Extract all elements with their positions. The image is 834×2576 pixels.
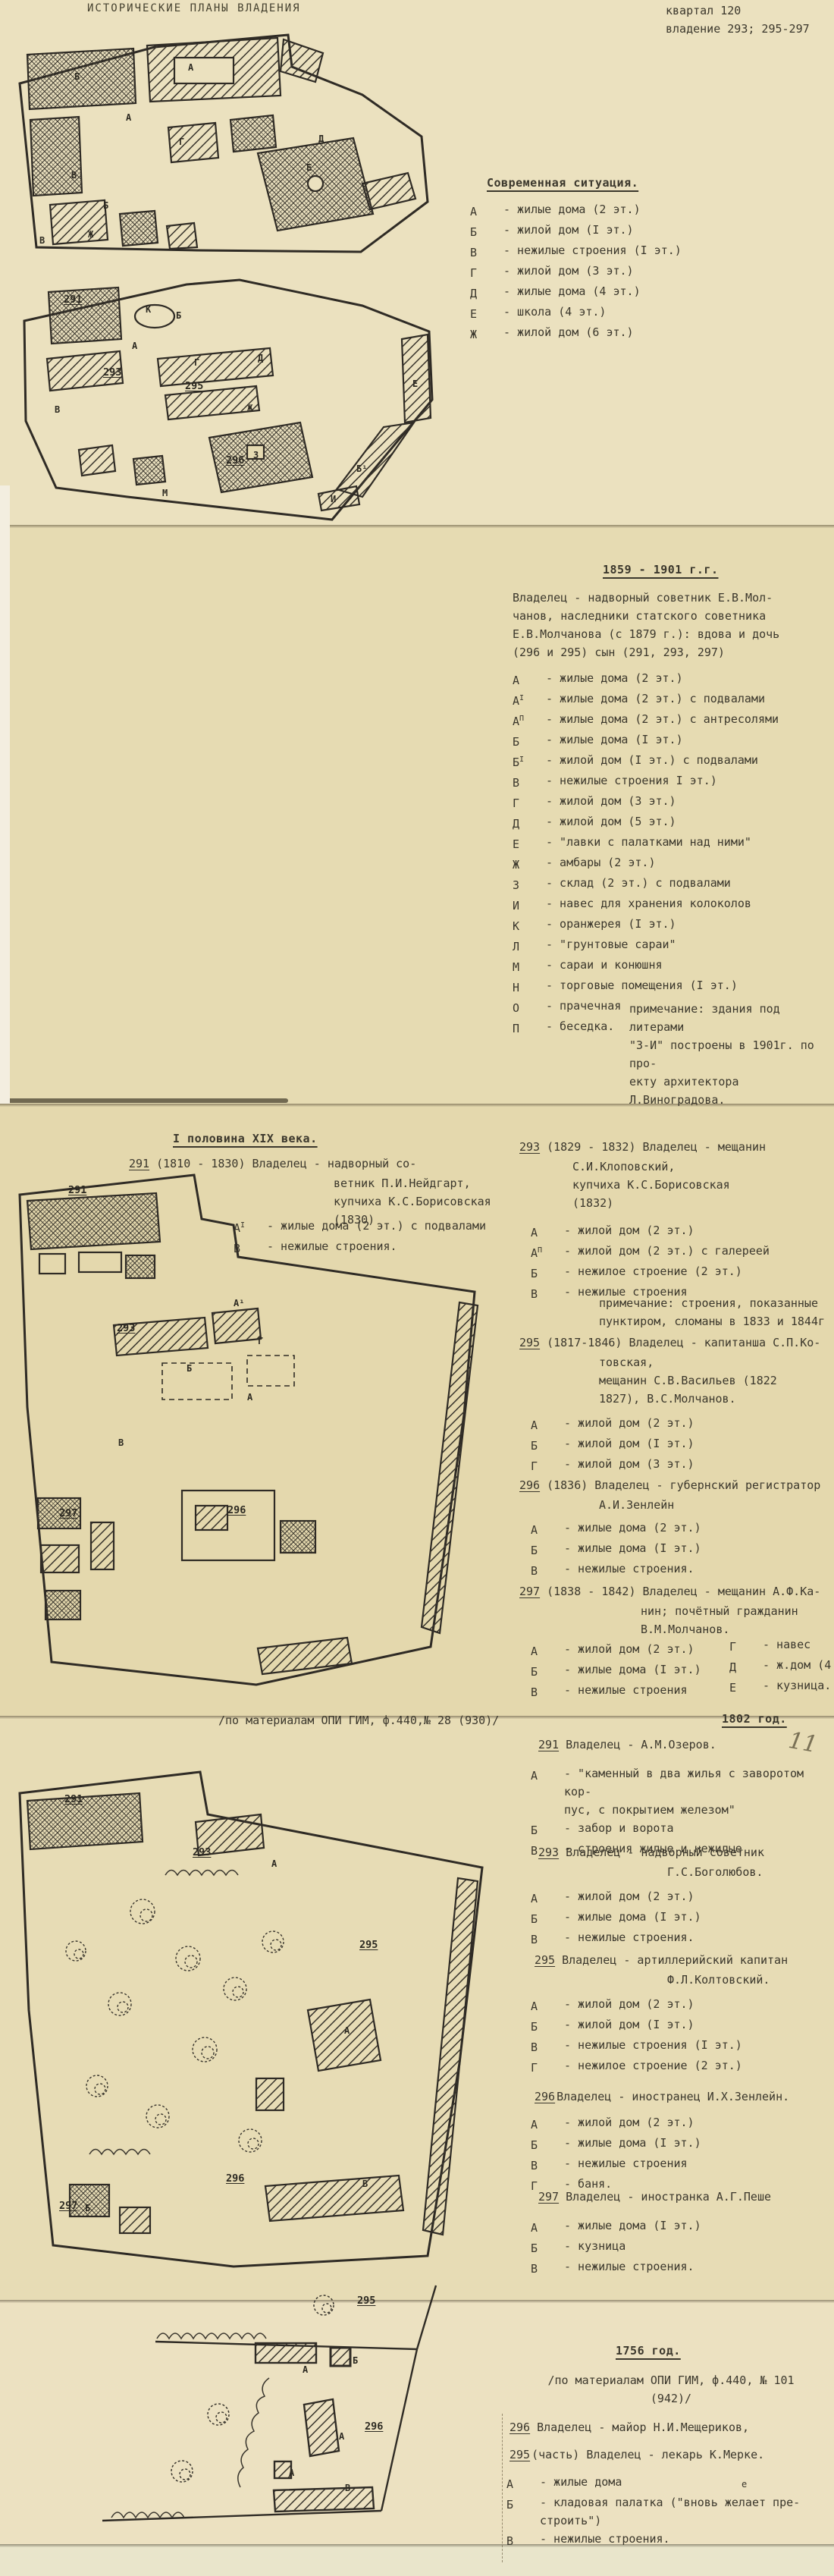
legend-text: - кладовая палатка ("вновь желает пре- с…: [540, 2493, 800, 2530]
legend-row: Д - жилой дом (5 эт.): [513, 812, 831, 833]
map-label: 291: [64, 1793, 83, 1805]
legend-row: Л - "грунтовые сараи": [513, 935, 831, 956]
legend-text: - нежилые строения: [564, 1681, 688, 1699]
section-heading-xix: I половина XIX века.: [173, 1132, 318, 1145]
owner-text: Владелец - губернский регистратор: [594, 1478, 820, 1492]
handwritten-page-number: 11: [786, 1727, 820, 1758]
plan-xix-labels: 291293296297А¹БАГВ: [6, 1164, 499, 1703]
map-label: 296: [226, 454, 244, 467]
ownership-number: 296: [509, 2420, 530, 2434]
legend-text: - жилые дома (I эт.): [564, 1660, 701, 1679]
plan-1756: 295296АБААВ: [42, 2279, 444, 2549]
entry-1802-297-items: А - жилые дома (I эт.) Б - кузница В - н…: [531, 2216, 819, 2278]
map-label: А: [126, 112, 131, 123]
legend-key: М: [513, 956, 546, 976]
legend-text: - жилой дом (3 эт.): [503, 262, 634, 280]
legend-key: БI: [513, 751, 546, 771]
entry-297-head: 297(1838 - 1842)Владелец - мещанин А.Ф.К…: [519, 1582, 820, 1601]
legend-key: А: [531, 1414, 564, 1434]
legend-text: - жилые дома (2 эт.): [564, 1519, 701, 1537]
legend-text: - жилые дома (2 эт.) с антресолями: [546, 710, 779, 728]
legend-text: - жилой дом (I эт.): [503, 221, 634, 239]
legend-row: Б - жилой дом (I эт.): [531, 1434, 819, 1455]
owner-text: (часть) Владелец - лекарь К.Мерке.: [531, 2448, 764, 2461]
legend-text: - нежилое строение (2 эт.): [564, 2056, 742, 2075]
legend-row: К - оранжерея (I эт.): [513, 915, 831, 935]
legend-text: - школа (4 эт.): [503, 303, 606, 321]
legend-row: Б - кладовая палатка ("вновь желает пре-…: [506, 2493, 825, 2530]
legend-key: А: [470, 200, 503, 221]
legend-key: П: [513, 1017, 546, 1038]
owner-text: Владелец - иностранец И.Х.Зенлейн.: [557, 2090, 789, 2103]
legend-key: АП: [531, 1242, 564, 1262]
legend-text: - нежилые строения (I эт.): [564, 2036, 742, 2054]
plan-xix: 291293296297А¹БАГВ: [6, 1164, 499, 1703]
legend-key: К: [513, 915, 546, 935]
entry-296-head: 296(1836)Владелец - губернский регистрат…: [519, 1476, 820, 1494]
map-label: 297: [59, 1507, 77, 1519]
legend-key: Г: [470, 262, 503, 282]
legend-key: А: [531, 1640, 564, 1660]
legend-key: А: [531, 1519, 564, 1539]
plan-modern: БААГДЕВБЖВ: [6, 23, 442, 259]
legend-row: Г - навес: [729, 1635, 834, 1656]
legend-text: - жилые дома (2 эт.): [546, 669, 683, 687]
ownership-number: 295: [519, 1336, 540, 1349]
ownership-number: 295: [509, 2448, 530, 2461]
entry-1802-296-head: 296Владелец - иностранец И.Х.Зенлейн.: [535, 2088, 789, 2106]
legend-row: Б - жилые дома (I эт.): [531, 2134, 819, 2154]
legend-row: В - нежилые строения: [531, 1681, 720, 1701]
legend-row: Ж - жилой дом (6 эт.): [470, 323, 819, 344]
ownership-number: 296: [535, 2090, 555, 2103]
legend-text: - жилые дома (I эт.): [546, 730, 683, 749]
legend-text: - жилой дом (2 эт.): [564, 1414, 694, 1432]
legend-key: А: [531, 2216, 564, 2237]
map-label: Б: [74, 71, 80, 82]
photo-edge-smudge: [0, 1098, 288, 1103]
legend-text: - жилой дом (2 эт.): [564, 1221, 694, 1239]
legend-key: А: [531, 2113, 564, 2134]
entry-1756-296: 296Владелец - майор Н.И.Мещериков,: [509, 2418, 749, 2436]
entry-years: (1817-1846): [547, 1336, 622, 1349]
map-label: 291: [64, 294, 82, 306]
legend-key: В: [531, 2036, 564, 2056]
entry-296-items: А - жилые дома (2 эт.) Б - жилые дома (I…: [531, 1519, 819, 1580]
legend-key: А: [513, 669, 546, 690]
legend-text: - нежилые строения.: [540, 2530, 670, 2548]
legend-key: В: [470, 241, 503, 262]
legend-row: А - жилые дома: [506, 2473, 825, 2493]
map-label: В: [39, 235, 45, 246]
legend-text: - жилой дом (6 эт.): [503, 323, 634, 341]
legend-row: Д - жилые дома (4 эт.): [470, 282, 819, 303]
legend-row: А - жилой дом (2 эт.): [531, 1414, 819, 1434]
owner-text: Владелец - артиллерийский капитан: [562, 1953, 788, 1967]
map-label: Б: [187, 1363, 192, 1374]
legend-row: А - жилые дома (2 эт.): [513, 669, 831, 690]
legend-row: В - нежилые строения (I эт.): [470, 241, 819, 262]
ownership-number: 293: [538, 1846, 559, 1859]
owner-text: Владелец - мещанин А.Ф.Ка-: [643, 1585, 821, 1598]
entry-years: (1829 - 1832): [547, 1140, 635, 1154]
section-heading-1756: 1756 год.: [616, 2344, 681, 2358]
legend-text: - жилые дома (2 эт.) с подвалами: [546, 690, 765, 708]
legend-key: АП: [513, 710, 546, 730]
legend-row: В - нежилые строения (I эт.): [531, 2036, 819, 2056]
legend-text: - жилой дом (3 эт.): [546, 792, 676, 810]
map-label: 296: [365, 2420, 383, 2433]
legend-key: Г: [531, 1455, 564, 1475]
map-label: 296: [226, 2172, 244, 2185]
legend-key: Б: [531, 1262, 564, 1283]
legend-key: Б: [531, 2237, 564, 2257]
legend-text: - жилой дом (2 эт.): [564, 2113, 694, 2131]
legend-row: АП - жилые дома (2 эт.) с антресолями: [513, 710, 831, 730]
legend-row: А - жилой дом (2 эт.): [531, 1221, 819, 1242]
legend-text: - нежилые строения.: [564, 1560, 694, 1578]
legend-row: Е - кузница.: [729, 1676, 834, 1697]
entry-297-owner-rest: нин; почётный гражданин В.М.Молчанов.: [641, 1602, 834, 1638]
legend-key: В: [531, 1681, 564, 1701]
legend-row: А - жилые дома (I эт.): [531, 2216, 819, 2237]
owner-text: Владелец - А.М.Озеров.: [566, 1738, 716, 1751]
plan-1859: 291293295296КБАВГДЕЖЗИБ¹М: [6, 269, 446, 531]
map-label: 296: [227, 1504, 246, 1516]
map-label: В: [118, 1437, 124, 1448]
legend-text: - жилой дом (I эт.) с подвалами: [546, 751, 758, 769]
legend-text: - жилой дом (2 эт.): [564, 1995, 694, 2013]
legend-text: - жилой дом (2 эт.) с галереей: [564, 1242, 770, 1260]
legend-text: - нежилые строения.: [564, 1928, 694, 1946]
legend-row: И - навес для хранения колоколов: [513, 894, 831, 915]
legend-text: - жилые дома (4 эт.): [503, 282, 641, 300]
legend-text: - склад (2 эт.) с подвалами: [546, 874, 731, 892]
legend-row: А - жилые дома (2 эт.): [470, 200, 819, 221]
legend-key: Б: [531, 2134, 564, 2154]
map-label: В: [362, 2179, 368, 2189]
entry-1802-293-items: А - жилой дом (2 эт.) Б - жилые дома (I …: [531, 1887, 819, 1949]
legend-key: Б: [531, 1434, 564, 1455]
entry-1802-296-items: А - жилой дом (2 эт.) Б - жилые дома (I …: [531, 2113, 819, 2195]
map-label: 295: [359, 1939, 378, 1951]
entry-297-items-left: А - жилой дом (2 эт.) Б - жилые дома (I …: [531, 1640, 720, 1701]
legend-text: - нежилые строения: [564, 2154, 688, 2172]
legend-text: - жилой дом (3 эт.): [564, 1455, 694, 1473]
legend-key: В: [531, 1560, 564, 1580]
entry-1802-291-head: 291Владелец - А.М.Озеров.: [538, 1736, 716, 1754]
ownership-number: 295: [535, 1953, 555, 1967]
legend-key: Б: [506, 2493, 540, 2514]
map-label: Г: [179, 137, 184, 147]
note-293: примечание: строения, показанные пунктир…: [599, 1294, 834, 1330]
legend-key: Л: [513, 935, 546, 956]
legend-text: - нежилые строения I эт.): [546, 771, 717, 790]
legend-text: - жилые дома (I эт.): [564, 1539, 701, 1557]
legend-text: - жилые дома (2 эт.): [503, 200, 641, 218]
map-label: А: [271, 1858, 277, 1869]
section-heading-1859: 1859 - 1901 г.г.: [603, 563, 719, 576]
legend-row: Б - забор и ворота: [531, 1819, 834, 1839]
legend-text: - сараи и конюшня: [546, 956, 663, 974]
map-label: 293: [117, 1322, 135, 1334]
map-label: Ж: [88, 229, 93, 240]
legend-row: А - жилой дом (2 эт.): [531, 1995, 819, 2015]
legend-text: - амбары (2 эт.): [546, 853, 656, 872]
ref-kvartal: квартал 120: [666, 2, 741, 20]
entry-1802-295-items: А - жилой дом (2 эт.) Б - жилой дом (I э…: [531, 1995, 819, 2077]
legend-row: АП - жилой дом (2 эт.) с галереей: [531, 1242, 819, 1262]
legend-text: - жилой дом (2 эт.): [564, 1640, 694, 1658]
entry-1756-items: А - жилые дома Б - кладовая палатка ("вн…: [506, 2473, 825, 2550]
ownership-number: 291: [538, 1738, 559, 1751]
legend-row: А - жилой дом (2 эт.): [531, 2113, 819, 2134]
map-label: Б: [103, 200, 108, 211]
entry-1802-293-head: 293Владелец - надворный советник: [538, 1843, 764, 1861]
entry-293-owner-rest: С.И.Клоповский, купчиха К.С.Борисовская …: [572, 1158, 777, 1212]
legend-row: Б - жилой дом (I эт.): [531, 2015, 819, 2036]
legend-key: А: [531, 1221, 564, 1242]
legend-key: Г: [531, 2056, 564, 2077]
map-label: А: [188, 62, 193, 73]
map-label: Г: [194, 357, 199, 368]
map-label: Б¹: [356, 463, 367, 474]
entry-295-items: А - жилой дом (2 эт.) Б - жилой дом (I э…: [531, 1414, 819, 1475]
map-label: 293: [193, 1846, 211, 1858]
legend-text: - жилые дома: [540, 2473, 622, 2491]
entry-years: (1838 - 1842): [547, 1585, 635, 1598]
legend-modern: А - жилые дома (2 эт.) Б - жилой дом (I …: [470, 200, 819, 344]
map-label: Ж: [247, 403, 252, 413]
legend-row: Б - жилые дома (I эт.): [531, 1660, 720, 1681]
legend-text: - жилой дом (2 эт.): [564, 1887, 694, 1905]
legend-key: АI: [513, 690, 546, 710]
owner-1859: Владелец - надворный советник Е.В.Мол- ч…: [513, 589, 823, 661]
map-label: А: [303, 2364, 308, 2375]
legend-text: - кузница.: [763, 1676, 831, 1695]
legend-key: Е: [729, 1676, 763, 1697]
legend-key: Н: [513, 976, 546, 997]
legend-row: Б - жилые дома (I эт.): [531, 1539, 819, 1560]
entry-1802-297-head: 297Владелец - иностранка А.Г.Пеше: [538, 2188, 771, 2206]
legend-row: З - склад (2 эт.) с подвалами: [513, 874, 831, 894]
legend-text: - навес: [763, 1635, 810, 1654]
legend-row: А - жилые дома (2 эт.): [531, 1519, 819, 1539]
legend-row: А - "каменный в два жилья с заворотом ко…: [531, 1764, 834, 1819]
legend-row: В - нежилые строения.: [531, 1928, 819, 1949]
ref-vladenie: владение 293; 295-297: [666, 20, 810, 38]
legend-text: - оранжерея (I эт.): [546, 915, 676, 933]
legend-key: Б: [531, 1539, 564, 1560]
legend-text: - навес для хранения колоколов: [546, 894, 751, 913]
legend-text: - "лавки с палатками над ними": [546, 833, 751, 851]
legend-key: В: [506, 2530, 540, 2550]
owner-text: Владелец - надворный советник: [566, 1846, 764, 1859]
note-1859: примечание: здания под литерами "З-И" по…: [629, 1000, 834, 1109]
entry-years: (1836): [547, 1478, 588, 1492]
legend-row: В - нежилые строения I эт.): [513, 771, 831, 792]
legend-key: В: [531, 2154, 564, 2175]
map-label: 295: [357, 2295, 375, 2307]
legend-key: Б: [531, 2015, 564, 2036]
legend-row: Б - жилые дома (I эт.): [513, 730, 831, 751]
handwritten-superscript-correction: е: [742, 2479, 747, 2490]
map-label: З: [253, 450, 259, 460]
legend-text: - "грунтовые сараи": [546, 935, 676, 953]
legend-row: Д - ж.дом (4: [729, 1656, 834, 1676]
page-title: ИСТОРИЧЕСКИЕ ПЛАНЫ ВЛАДЕНИЯ: [87, 2, 301, 14]
legend-text: - жилые дома (I эт.): [564, 1908, 701, 1926]
legend-text: - жилые дома (I эт.): [564, 2216, 701, 2235]
map-label: Е: [306, 162, 312, 173]
legend-row: Г - жилой дом (3 эт.): [531, 1455, 819, 1475]
map-label: А: [247, 1392, 252, 1403]
legend-key: Е: [513, 833, 546, 853]
plan-1859-labels: 291293295296КБАВГДЕЖЗИБ¹М: [6, 269, 446, 531]
legend-row: Г - жилой дом (3 эт.): [513, 792, 831, 812]
entry-296-owner-rest: А.И.Зенлейн: [599, 1496, 826, 1514]
legend-text: - беседка.: [546, 1017, 614, 1035]
map-label: А¹: [234, 1298, 244, 1308]
map-label: В: [345, 2483, 350, 2493]
source-1802: /по материалам ОПИ ГИМ, ф.440,№ 28 (930)…: [218, 1711, 499, 1729]
legend-key: А: [506, 2473, 540, 2493]
ownership-number: 297: [538, 2190, 559, 2204]
legend-text: - жилой дом (I эт.): [564, 1434, 694, 1453]
legend-row: Б - нежилое строение (2 эт.): [531, 1262, 819, 1283]
legend-key: Д: [513, 812, 546, 833]
legend-key: Е: [470, 303, 503, 323]
plan-1802-labels: 291293295296297ААВБ: [6, 1760, 503, 2291]
legend-row: Е - "лавки с палатками над ними": [513, 833, 831, 853]
map-label: Д: [318, 134, 324, 144]
plan-1802: 291293295296297ААВБ: [6, 1760, 503, 2291]
legend-row: БI - жилой дом (I эт.) с подвалами: [513, 751, 831, 771]
legend-key: Г: [513, 792, 546, 812]
legend-row: Ж - амбары (2 эт.): [513, 853, 831, 874]
entry-1802-293-owner-rest: Г.С.Боголюбов.: [667, 1863, 834, 1881]
legend-key: Д: [729, 1656, 763, 1676]
plan-modern-labels: БААГДЕВБЖВ: [6, 23, 442, 259]
legend-row: Е - школа (4 эт.): [470, 303, 819, 323]
entry-297-items-right: Г - навес Д - ж.дом (4 Е - кузница.: [729, 1635, 834, 1697]
legend-row: Б - жилой дом (I эт.): [470, 221, 819, 241]
ownership-number: 296: [519, 1478, 540, 1492]
map-label: В: [71, 170, 77, 181]
map-label: А: [344, 2025, 350, 2036]
map-label: 297: [59, 2200, 77, 2212]
legend-text: - нежилое строение (2 эт.): [564, 1262, 742, 1280]
legend-text: - нежилые строения.: [564, 2257, 694, 2276]
entry-295-owner-rest: товская, мещанин С.В.Васильев (1822 1827…: [599, 1353, 826, 1408]
legend-row: Б - жилые дома (I эт.): [531, 1908, 819, 1928]
margin-dashed-line: [502, 2414, 503, 2562]
legend-key: Б: [531, 1908, 564, 1928]
legend-key: Г: [729, 1635, 763, 1656]
ownership-number: 293: [519, 1140, 540, 1154]
map-label: 295: [185, 380, 203, 392]
document: ИСТОРИЧЕСКИЕ ПЛАНЫ ВЛАДЕНИЯ квартал 120 …: [0, 0, 834, 2576]
entry-1802-295-owner-rest: Ф.Л.Колтовский.: [667, 1971, 834, 1989]
legend-row: В - нежилые строения.: [531, 2257, 819, 2278]
ownership-number: 297: [519, 1585, 540, 1598]
legend-row: А - жилой дом (2 эт.): [531, 1640, 720, 1660]
legend-key: Б: [531, 1819, 564, 1839]
legend-key: Б: [531, 1660, 564, 1681]
legend-1859: А - жилые дома (2 эт.) АI - жилые дома (…: [513, 669, 831, 1038]
legend-key: А: [531, 1887, 564, 1908]
map-label: М: [162, 488, 168, 498]
legend-text: - прачечная: [546, 997, 621, 1015]
legend-key: О: [513, 997, 546, 1017]
source-1756: /по материалам ОПИ ГИМ, ф.440, № 101 (94…: [523, 2371, 819, 2408]
legend-row: М - сараи и конюшня: [513, 956, 831, 976]
legend-text: - жилые дома (I эт.): [564, 2134, 701, 2152]
legend-row: Г - жилой дом (3 эт.): [470, 262, 819, 282]
entry-293-items: А - жилой дом (2 эт.) АП - жилой дом (2 …: [531, 1221, 819, 1303]
plan-1756-labels: 295296АБААВ: [42, 2279, 444, 2549]
legend-key: Б: [470, 221, 503, 241]
legend-row: В - нежилые строения.: [531, 1560, 819, 1580]
legend-row: В - нежилые строения.: [506, 2530, 825, 2550]
legend-key: Д: [470, 282, 503, 303]
map-label: А: [132, 341, 137, 351]
legend-row: Г - нежилое строение (2 эт.): [531, 2056, 819, 2077]
page-edge: [0, 485, 10, 1104]
legend-text: - ж.дом (4: [763, 1656, 831, 1674]
legend-row: АI - жилые дома (2 эт.) с подвалами: [513, 690, 831, 710]
entry-295-head: 295(1817-1846)Владелец - капитанша С.П.К…: [519, 1334, 820, 1352]
section-heading-1802: 1802 год.: [722, 1712, 787, 1726]
section-heading-modern: Современная ситуация.: [487, 176, 638, 190]
legend-row: Н - торговые помещения (I эт.): [513, 976, 831, 997]
owner-text: Владелец - майор Н.И.Мещериков,: [537, 2420, 749, 2434]
legend-key: З: [513, 874, 546, 894]
map-label: 293: [103, 366, 121, 379]
owner-text: Владелец - иностранка А.Г.Пеше: [566, 2190, 771, 2204]
map-label: А: [339, 2431, 344, 2442]
legend-text: - "каменный в два жилья с заворотом кор-…: [564, 1764, 834, 1819]
owner-text: Владелец - капитанша С.П.Ко-: [629, 1336, 820, 1349]
legend-text: - забор и ворота: [564, 1819, 674, 1837]
map-label: Е: [412, 379, 418, 389]
map-label: Г: [258, 1336, 263, 1346]
entry-1756-295: 295(часть) Владелец - лекарь К.Мерке.: [509, 2446, 764, 2464]
legend-row: Б - кузница: [531, 2237, 819, 2257]
map-label: К: [146, 304, 151, 315]
map-label: Б: [353, 2355, 358, 2366]
legend-key: А: [531, 1995, 564, 2015]
legend-key: В: [531, 1928, 564, 1949]
legend-key: Б: [513, 730, 546, 751]
legend-key: Ж: [470, 323, 503, 344]
map-label: Д: [258, 353, 263, 363]
legend-key: В: [531, 2257, 564, 2278]
legend-text: - нежилые строения (I эт.): [503, 241, 682, 259]
map-label: И: [331, 494, 336, 504]
map-label: Б: [85, 2203, 90, 2213]
map-label: А: [289, 2468, 294, 2478]
legend-text: - жилой дом (5 эт.): [546, 812, 676, 831]
owner-text: Владелец - мещанин: [643, 1140, 767, 1154]
entry-293-head: 293(1829 - 1832)Владелец - мещанин: [519, 1138, 766, 1156]
legend-row: А - жилой дом (2 эт.): [531, 1887, 819, 1908]
legend-text: - жилой дом (I эт.): [564, 2015, 694, 2034]
legend-key: В: [531, 1283, 564, 1303]
legend-key: И: [513, 894, 546, 915]
legend-text: - торговые помещения (I эт.): [546, 976, 738, 994]
entry-1802-295-head: 295Владелец - артиллерийский капитан: [535, 1951, 788, 1969]
